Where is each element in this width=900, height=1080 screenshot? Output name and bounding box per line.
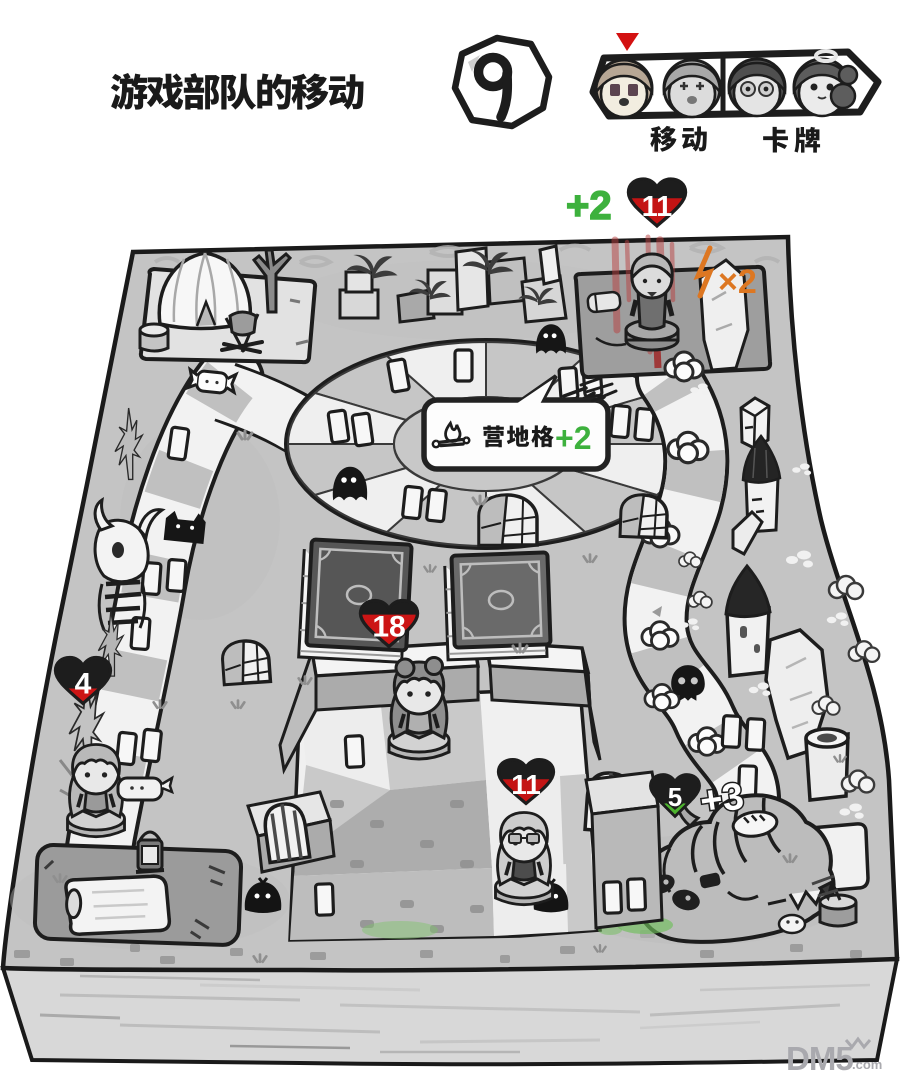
svg-text:4: 4	[75, 668, 92, 701]
svg-text:5: 5	[668, 782, 682, 812]
svg-text:.com: .com	[852, 1057, 882, 1072]
svg-text:11: 11	[642, 191, 673, 223]
svg-text:18: 18	[372, 611, 405, 644]
svg-text:+3: +3	[698, 775, 747, 823]
svg-text:11: 11	[511, 769, 541, 800]
svg-text:+2: +2	[566, 184, 612, 228]
svg-text:DM5: DM5	[786, 1040, 853, 1077]
svg-text:×2: ×2	[718, 263, 757, 301]
svg-text:+2: +2	[555, 420, 591, 456]
